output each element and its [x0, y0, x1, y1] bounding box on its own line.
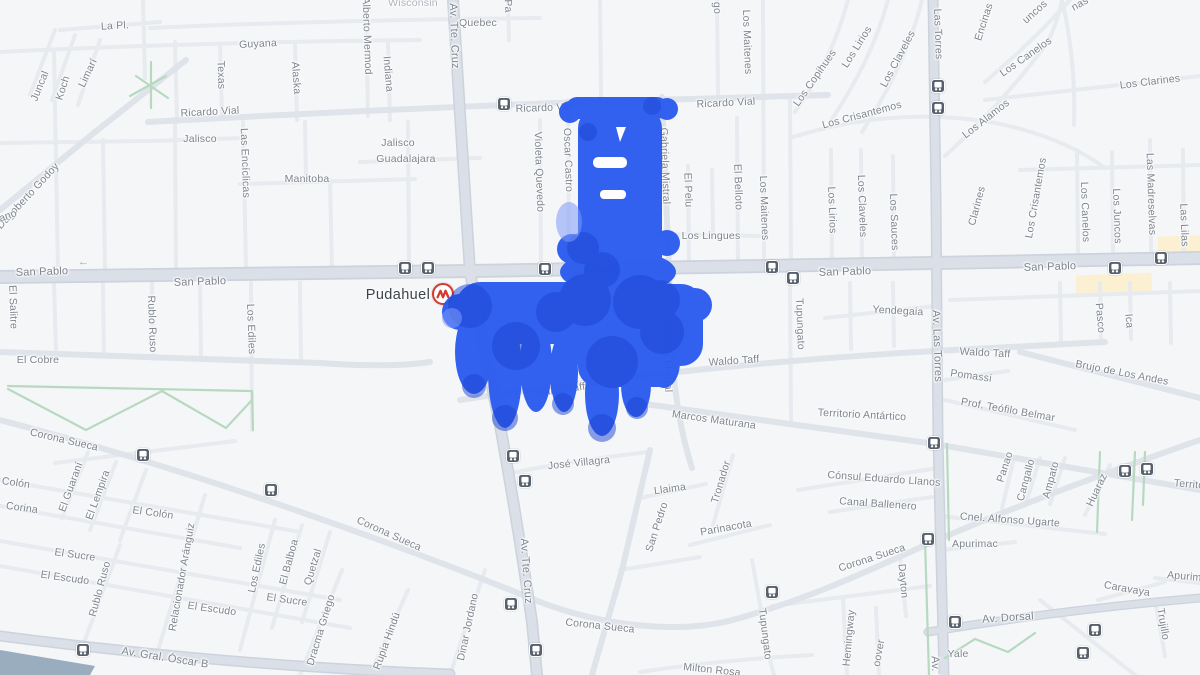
bus-stop-icon[interactable] [504, 597, 518, 611]
bus-stop-icon[interactable] [1076, 646, 1090, 660]
bus-stop-icon[interactable] [765, 260, 779, 274]
bus-stop-icon[interactable] [136, 448, 150, 462]
bus-stop-icon[interactable] [1118, 464, 1132, 478]
bus-stop-icon[interactable] [786, 271, 800, 285]
bus-stop-icon[interactable] [421, 261, 435, 275]
bus-stop-icon[interactable] [1140, 462, 1154, 476]
bus-stop-icon[interactable] [1088, 623, 1102, 637]
bus-stop-icon[interactable] [264, 483, 278, 497]
bus-stop-icon[interactable] [506, 449, 520, 463]
bus-stop-icon[interactable] [931, 79, 945, 93]
bus-stop-icon[interactable] [931, 101, 945, 115]
bus-stop-icon[interactable] [1154, 251, 1168, 265]
bus-stop-icon[interactable] [765, 585, 779, 599]
bus-stop-icon[interactable] [497, 97, 511, 111]
bus-stop-icon[interactable] [927, 436, 941, 450]
bus-stop-icon[interactable] [948, 615, 962, 629]
bus-stop-icon[interactable] [1108, 261, 1122, 275]
bus-stop-icon[interactable] [921, 532, 935, 546]
one-way-arrow-icon: ← [78, 257, 89, 268]
bus-stop-icon[interactable] [538, 262, 552, 276]
map-canvas[interactable]: La Pl.GuyanaJuncalKochLimaríTexasAlaskaR… [0, 0, 1200, 675]
bus-stop-icon[interactable] [398, 261, 412, 275]
metro-station-icon[interactable] [432, 283, 454, 305]
bus-stop-icon[interactable] [76, 643, 90, 657]
bus-stop-icon[interactable] [518, 474, 532, 488]
transit-icons-layer: ← [0, 0, 1200, 675]
bus-stop-icon[interactable] [529, 643, 543, 657]
